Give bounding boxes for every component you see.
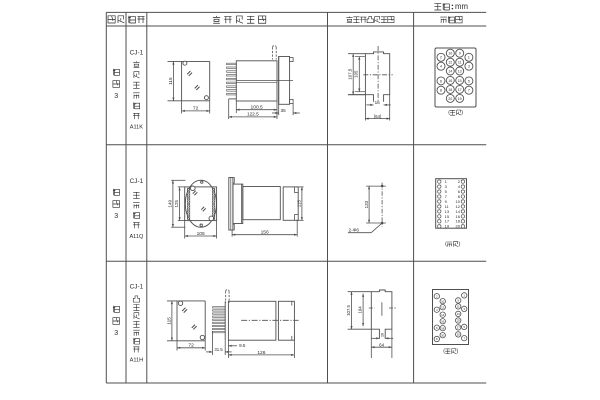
svg-text:20: 20 xyxy=(456,224,461,229)
svg-text:7: 7 xyxy=(468,89,470,93)
svg-text:20: 20 xyxy=(448,97,452,101)
svg-text:5: 5 xyxy=(468,79,470,83)
svg-text:17: 17 xyxy=(458,88,462,92)
svg-text:31.5: 31.5 xyxy=(214,347,223,352)
svg-text:1: 1 xyxy=(468,56,470,60)
svg-text:133: 133 xyxy=(364,200,369,208)
svg-text:15: 15 xyxy=(457,319,461,323)
svg-text:3: 3 xyxy=(468,65,470,69)
svg-text:(: ( xyxy=(448,110,450,116)
svg-text:(: ( xyxy=(445,241,447,247)
svg-text:18: 18 xyxy=(441,326,445,330)
svg-text:125: 125 xyxy=(174,200,179,208)
svg-text:CJ-1: CJ-1 xyxy=(130,49,144,56)
svg-text:6: 6 xyxy=(440,79,442,83)
svg-text:14: 14 xyxy=(448,69,452,73)
svg-text:A11K: A11K xyxy=(130,124,144,130)
svg-text:19: 19 xyxy=(445,224,450,229)
svg-text:15: 15 xyxy=(458,79,462,83)
svg-text:115: 115 xyxy=(168,77,173,85)
svg-text:126: 126 xyxy=(257,350,265,356)
svg-text:10: 10 xyxy=(448,52,452,56)
svg-text:19: 19 xyxy=(458,97,462,101)
svg-text:12: 12 xyxy=(448,61,452,65)
svg-text:35: 35 xyxy=(281,108,287,113)
svg-text:CJ-1: CJ-1 xyxy=(130,178,144,185)
svg-text:3: 3 xyxy=(114,330,118,337)
svg-text:20: 20 xyxy=(441,333,445,337)
svg-text:156: 156 xyxy=(261,230,269,236)
svg-text:16: 16 xyxy=(448,79,452,83)
svg-text:107.5: 107.5 xyxy=(347,68,352,80)
svg-text:105: 105 xyxy=(354,70,359,78)
svg-text:13: 13 xyxy=(457,312,461,316)
svg-text:64: 64 xyxy=(379,342,385,347)
svg-text:(: ( xyxy=(443,349,445,355)
svg-text:104: 104 xyxy=(358,306,363,314)
svg-text:mm: mm xyxy=(455,2,468,11)
svg-text:9: 9 xyxy=(459,52,461,56)
svg-text:3: 3 xyxy=(114,93,118,100)
svg-text:13: 13 xyxy=(458,69,462,73)
svg-text:16: 16 xyxy=(441,319,445,323)
svg-text:105: 105 xyxy=(197,231,205,237)
svg-text:18: 18 xyxy=(448,88,452,92)
svg-text:2: 2 xyxy=(440,56,442,60)
svg-text:115: 115 xyxy=(166,317,171,325)
svg-text:A11H: A11H xyxy=(130,358,144,364)
svg-text:100.5: 100.5 xyxy=(251,104,264,110)
svg-text:72: 72 xyxy=(193,106,199,112)
svg-text:107.5: 107.5 xyxy=(346,304,351,315)
svg-text:3: 3 xyxy=(114,213,118,220)
svg-text:): ) xyxy=(461,110,463,116)
svg-text:17: 17 xyxy=(457,325,461,329)
svg-text:): ) xyxy=(459,241,461,247)
svg-text:122.5: 122.5 xyxy=(247,112,259,117)
svg-text:11: 11 xyxy=(458,61,462,65)
svg-text:14: 14 xyxy=(441,313,445,317)
svg-text:4: 4 xyxy=(440,65,442,69)
svg-text:2-Φ6: 2-Φ6 xyxy=(349,227,360,232)
svg-text:A11Q: A11Q xyxy=(129,234,144,240)
svg-text:115: 115 xyxy=(296,200,301,208)
svg-text:10: 10 xyxy=(441,299,445,303)
svg-text:149: 149 xyxy=(167,200,172,208)
svg-text:CJ-1: CJ-1 xyxy=(130,284,144,291)
svg-text:11: 11 xyxy=(457,304,460,308)
svg-text:9.5: 9.5 xyxy=(239,343,246,348)
svg-text:): ) xyxy=(457,349,459,355)
svg-text:19: 19 xyxy=(457,332,461,336)
svg-text:16: 16 xyxy=(379,333,384,337)
svg-text:12: 12 xyxy=(441,305,445,309)
svg-text:8: 8 xyxy=(440,89,442,93)
svg-text:16: 16 xyxy=(375,100,381,105)
svg-text:72: 72 xyxy=(188,343,194,349)
svg-text:[64]: [64] xyxy=(374,114,381,119)
